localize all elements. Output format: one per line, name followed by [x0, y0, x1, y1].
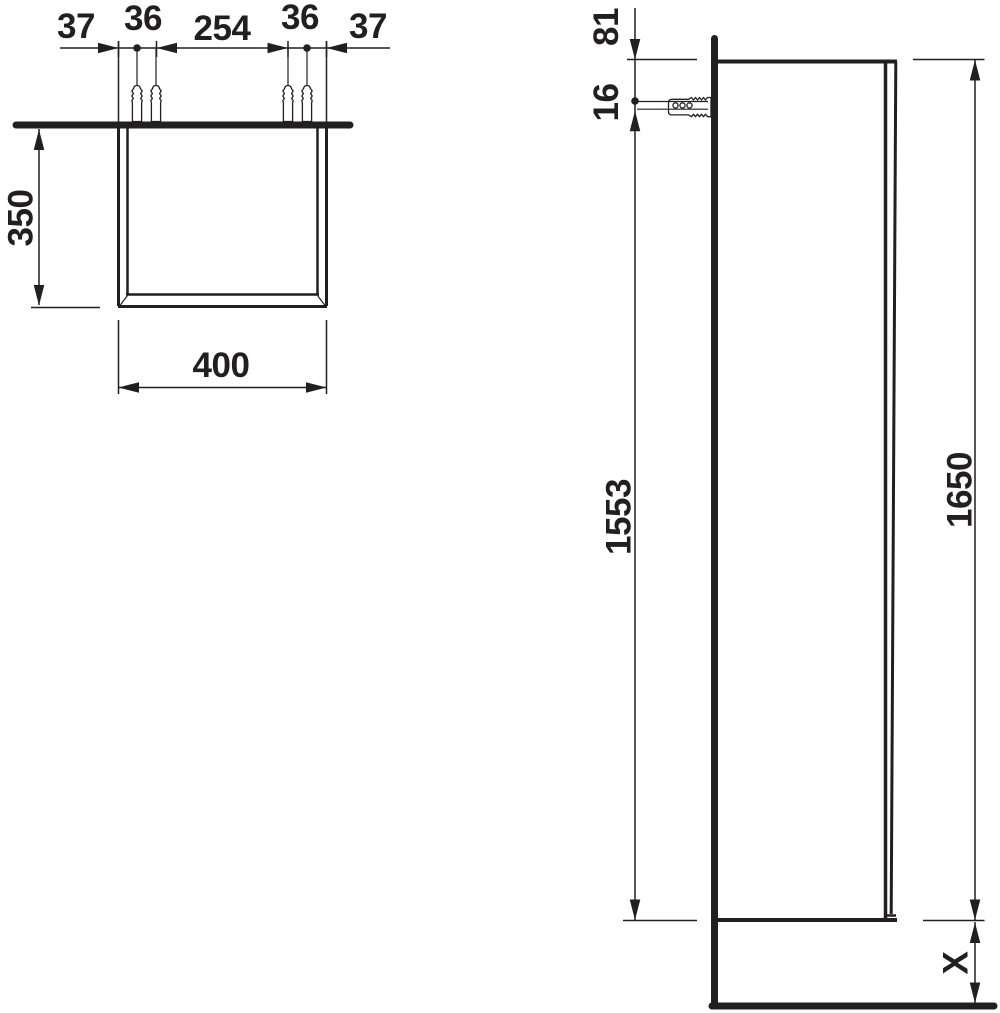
cabinet-outline-side-view — [718, 60, 897, 920]
dim-label-37-left: 37 — [57, 7, 95, 46]
cabinet-installation-drawing: 37 36 254 36 37 350 — [0, 0, 1000, 1013]
dim-arrow-down — [970, 900, 981, 921]
plug-detail-circle — [673, 103, 678, 108]
dim-label-36-left: 36 — [124, 0, 162, 38]
dim-floor-clearance-x: X — [937, 922, 981, 1003]
dim-arrow-up — [34, 130, 45, 151]
wall-plug-icon — [302, 86, 312, 122]
dim-label-x: X — [937, 950, 976, 974]
plug-detail-circle — [680, 103, 685, 108]
dim-arrow-right — [306, 382, 327, 393]
dim-label-37-right: 37 — [349, 7, 387, 46]
dim-arrow-up — [630, 111, 641, 132]
top-view: 37 36 254 36 37 350 — [2, 0, 391, 394]
dim-arrow-down — [970, 983, 981, 1004]
side-view: 81 16 1553 1650 X — [587, 8, 994, 1006]
dim-label-36-right: 36 — [281, 0, 319, 37]
dim-label-81: 81 — [587, 8, 626, 46]
dim-arrow-left — [327, 43, 348, 53]
dim-label-1553: 1553 — [600, 479, 639, 555]
dim-label-400: 400 — [193, 346, 250, 385]
cabinet-outline-top-view — [118, 128, 327, 307]
wall-plug-icon — [283, 86, 293, 122]
wall-plug-icon — [151, 86, 161, 122]
dim-point-dot — [133, 44, 141, 52]
dim-width-400: 400 — [119, 320, 327, 394]
dim-point-dot — [631, 97, 639, 105]
cabinet-front-bevel-left — [120, 296, 128, 306]
dim-arrow-left — [157, 43, 178, 53]
dim-label-1650: 1650 — [941, 452, 980, 528]
dim-arrow-right — [268, 43, 289, 53]
dim-arrow-down — [630, 900, 641, 921]
dim-arrow-up — [970, 60, 981, 81]
dim-arrow-down — [34, 285, 45, 306]
dim-label-16: 16 — [587, 84, 626, 122]
dim-arrow-left — [119, 382, 140, 393]
dim-left-stack: 81 16 1553 — [587, 8, 697, 921]
plug-detail-circle — [687, 103, 692, 108]
dim-label-254: 254 — [194, 9, 252, 48]
dim-arrow-right — [98, 43, 119, 53]
dim-height-1650: 1650 — [913, 60, 985, 921]
dim-depth-350: 350 — [2, 129, 101, 308]
technical-drawing-page: 37 36 254 36 37 350 — [0, 0, 1000, 1013]
dim-point-dot — [303, 44, 311, 52]
dim-arrow-up — [970, 923, 981, 944]
wall-plug-icon-side — [637, 98, 711, 117]
dim-horizontal-chain: 37 36 254 36 37 — [57, 0, 390, 57]
dim-label-350: 350 — [2, 190, 41, 247]
cabinet-door-front-face — [891, 62, 896, 914]
dim-arrow-down — [630, 39, 641, 60]
wall-plug-icon — [132, 86, 142, 122]
cabinet-front-bevel-right — [318, 296, 326, 306]
